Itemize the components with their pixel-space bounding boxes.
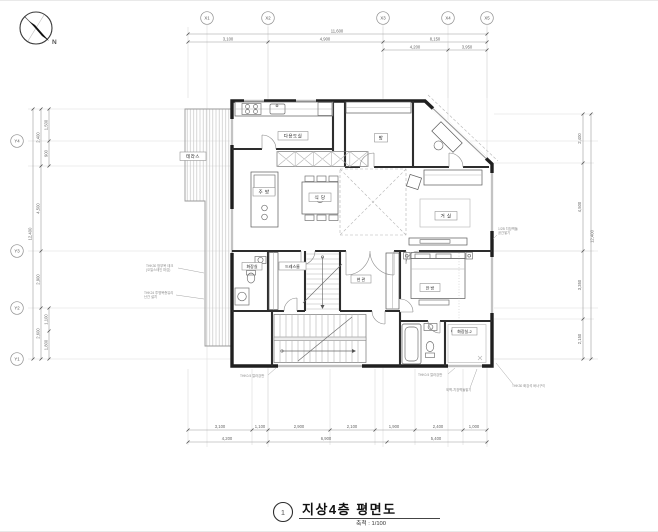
dimensions-bottom: 3,100 1,100 2,900 2,100 1,900 2,400 1,00… xyxy=(187,424,489,444)
room-label-master: 안 방 xyxy=(426,284,435,290)
annotation-stone-bottom: THK30 화강석 버너구이 xyxy=(512,383,545,388)
room-label-bathroom2: 화장실-2 xyxy=(457,328,472,334)
dim-bot-e: 1,900 xyxy=(389,424,400,429)
grid-label-x2: X2 xyxy=(265,16,271,21)
grid-label-y4: Y4 xyxy=(14,139,20,144)
drawing-scale: 축척 : 1/100 xyxy=(356,519,386,527)
dim-left-seg4: 2,600 xyxy=(36,328,41,339)
dim-bot-f: 2,400 xyxy=(433,424,444,429)
room-label-living: 거 실 xyxy=(441,213,452,220)
grid-label-x4: X4 xyxy=(445,16,451,21)
north-arrow-icon xyxy=(29,21,49,41)
annotation-deck-2: (오일스테인 마감) xyxy=(146,267,170,272)
dim-left-total: 12,400 xyxy=(28,227,33,240)
dim-right-seg2: 4,500 xyxy=(577,201,582,212)
grid-label-y1: Y1 xyxy=(14,357,20,362)
compass-north-label: N xyxy=(52,39,57,46)
room-label-utility: 다용도실 xyxy=(284,133,303,140)
dim-left-sub2: 900 xyxy=(44,149,49,157)
dimensions-left: 12,400 2,400 4,500 2,900 2,600 1,500 900… xyxy=(28,108,51,361)
dim-top-seg2: 4,900 xyxy=(320,37,331,42)
dim-right-seg3: 3,350 xyxy=(577,279,582,290)
dimensions-right: 2,400 4,500 3,350 2,150 12,400 xyxy=(577,113,595,361)
dimensions-top: 11,600 3,100 4,900 8,150 4,200 3,950 xyxy=(187,29,489,52)
dim-right-seg4: 2,150 xyxy=(577,333,582,344)
floor-plan-page: X1 X2 X3 X4 X5 Y4 Y3 Y2 Y1 11,600 3,100 … xyxy=(0,0,658,532)
floor-plan-drawing: X1 X2 X3 X4 X5 Y4 Y3 Y2 Y1 11,600 3,100 … xyxy=(0,1,658,531)
dim-bot-i: 6,900 xyxy=(321,436,332,441)
dim-right-total: 12,400 xyxy=(590,229,595,242)
annotation-rail-2: 난간 설치 xyxy=(144,294,157,299)
dim-bot-d: 2,100 xyxy=(347,424,358,429)
grid-label-y3: Y3 xyxy=(14,249,20,254)
room-label-dressroom: 드레스룸 xyxy=(285,263,300,269)
dim-top-seg4: 4,200 xyxy=(410,45,421,50)
dim-left-seg1: 2,400 xyxy=(36,132,41,143)
dim-left-sub4: 1,800 xyxy=(44,339,49,350)
dim-bot-g: 1,000 xyxy=(469,424,480,429)
room-label-terrace: 테라스 xyxy=(186,153,200,160)
terrace-deck xyxy=(185,109,232,346)
headboard xyxy=(411,253,465,259)
sheet-number: 1 xyxy=(281,508,285,517)
grid-label-y2: Y2 xyxy=(14,306,20,311)
dim-left-seg2: 4,500 xyxy=(36,203,41,214)
grid-label-x3: X3 xyxy=(380,16,386,21)
grid-label-x5: X5 xyxy=(484,16,490,21)
room-label-bathroom: 화장실 xyxy=(246,263,257,269)
dim-bot-j: 5,400 xyxy=(431,436,442,441)
annotation-brick-bottom: 외벽-치장벽돌쌓기 xyxy=(446,387,471,392)
dim-bot-b: 1,100 xyxy=(255,424,266,429)
north-compass: N xyxy=(20,12,57,46)
room-label-dining: 식 당 xyxy=(315,194,326,201)
sofa xyxy=(424,170,482,185)
dim-left-sub3: 1,100 xyxy=(44,314,49,325)
dim-right-seg1: 2,400 xyxy=(577,133,582,144)
dim-top-seg3: 8,150 xyxy=(430,37,441,42)
dim-bot-h: 4,200 xyxy=(222,436,233,441)
dim-top-seg1: 3,100 xyxy=(223,37,234,42)
room-label-entry: 현 관 xyxy=(357,276,366,282)
dim-top-total: 11,600 xyxy=(331,29,344,34)
tv-console xyxy=(409,238,467,245)
annotation-panel-right: THK0.5 칼라강판 xyxy=(418,372,442,377)
dim-left-seg3: 2,900 xyxy=(36,274,41,285)
annotation-brick-right-2: 공간쌓기 xyxy=(498,230,510,235)
dim-top-seg5: 3,950 xyxy=(462,45,473,50)
stair-rail xyxy=(274,337,366,341)
dim-bot-a: 3,100 xyxy=(215,424,226,429)
bed xyxy=(411,259,465,299)
dim-left-sub1: 1,500 xyxy=(44,119,49,130)
drawing-title: 지상4층 평면도 xyxy=(302,502,397,517)
title-block: 1 지상4층 평면도 축척 : 1/100 xyxy=(274,502,441,527)
grid-label-x1: X1 xyxy=(204,16,210,21)
dim-bot-c: 2,900 xyxy=(294,424,305,429)
annotation-panel-left: THK0.5 칼라강판 xyxy=(240,373,264,378)
kitchen-island xyxy=(251,172,278,227)
room-label-room: 방 xyxy=(379,135,384,141)
room-label-kitchen: 주 방 xyxy=(259,189,270,196)
